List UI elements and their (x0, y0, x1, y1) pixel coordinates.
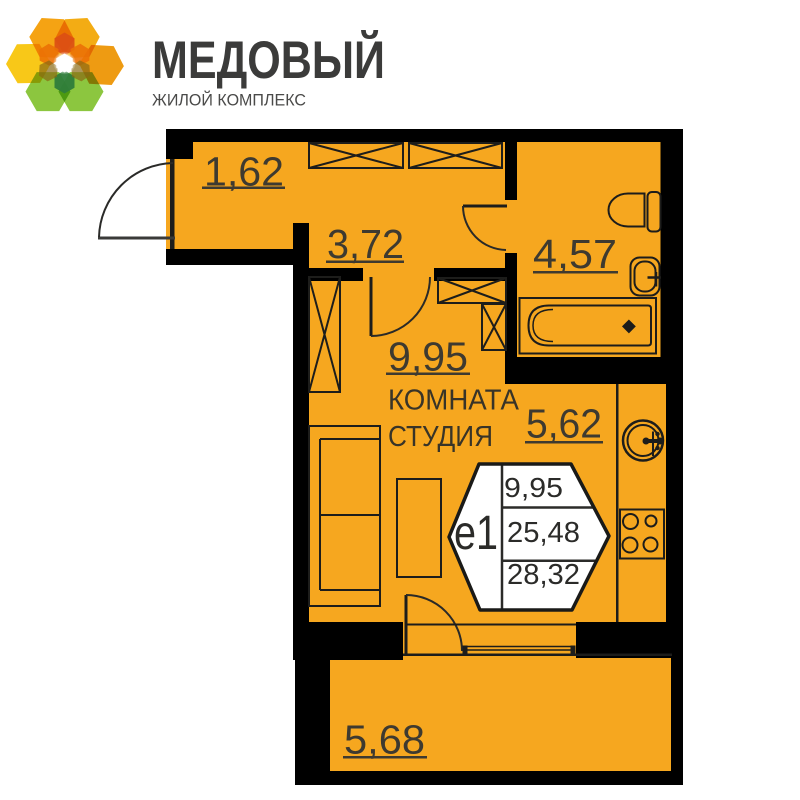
svg-text:МЕДОВЫЙ: МЕДОВЫЙ (152, 29, 385, 90)
svg-text:5,62: 5,62 (526, 401, 602, 447)
svg-text:28,32: 28,32 (507, 559, 580, 591)
svg-text:КОМНАТА: КОМНАТА (388, 385, 520, 417)
svg-text:5,68: 5,68 (344, 717, 425, 763)
svg-text:е1: е1 (454, 507, 498, 560)
svg-text:9,95: 9,95 (504, 472, 563, 503)
svg-text:4,57: 4,57 (533, 231, 617, 277)
svg-text:СТУДИЯ: СТУДИЯ (388, 421, 493, 453)
svg-text:ЖИЛОЙ КОМПЛЕКС: ЖИЛОЙ КОМПЛЕКС (152, 91, 306, 110)
svg-text:25,48: 25,48 (507, 517, 580, 549)
svg-text:3,72: 3,72 (327, 221, 404, 267)
